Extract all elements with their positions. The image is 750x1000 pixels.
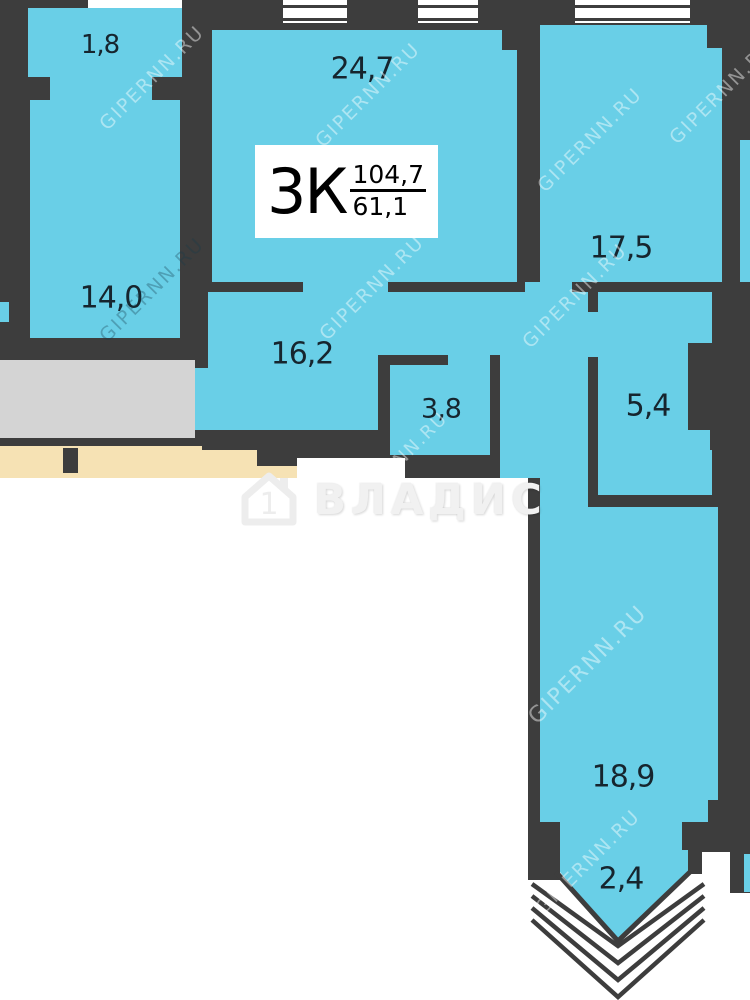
area-label-hallway: 16,2 [271,337,334,372]
rooms-count-label: 3К [267,161,346,223]
area-label-storage: 5,4 [626,389,671,424]
area-label-bay: 2,4 [599,862,644,897]
svg-text:1: 1 [259,487,278,522]
watermark-vladis: 1 ВЛАДИС [238,470,547,528]
plan-title-box: 3К 104,7 61,1 [255,145,438,238]
living-area-label: 61,1 [350,192,410,222]
vladis-label: ВЛАДИС [314,475,547,524]
area-label-bedroom-bottom: 18,9 [592,760,655,795]
area-fraction: 104,7 61,1 [350,161,426,222]
vladis-house-icon: 1 [238,470,300,528]
area-label-balcony-top: 1,8 [81,30,119,60]
total-area-label: 104,7 [350,161,426,193]
floor-plan: 3К 104,7 61,1 1,8 24,7 17,5 14,0 16,2 3,… [0,0,750,1000]
